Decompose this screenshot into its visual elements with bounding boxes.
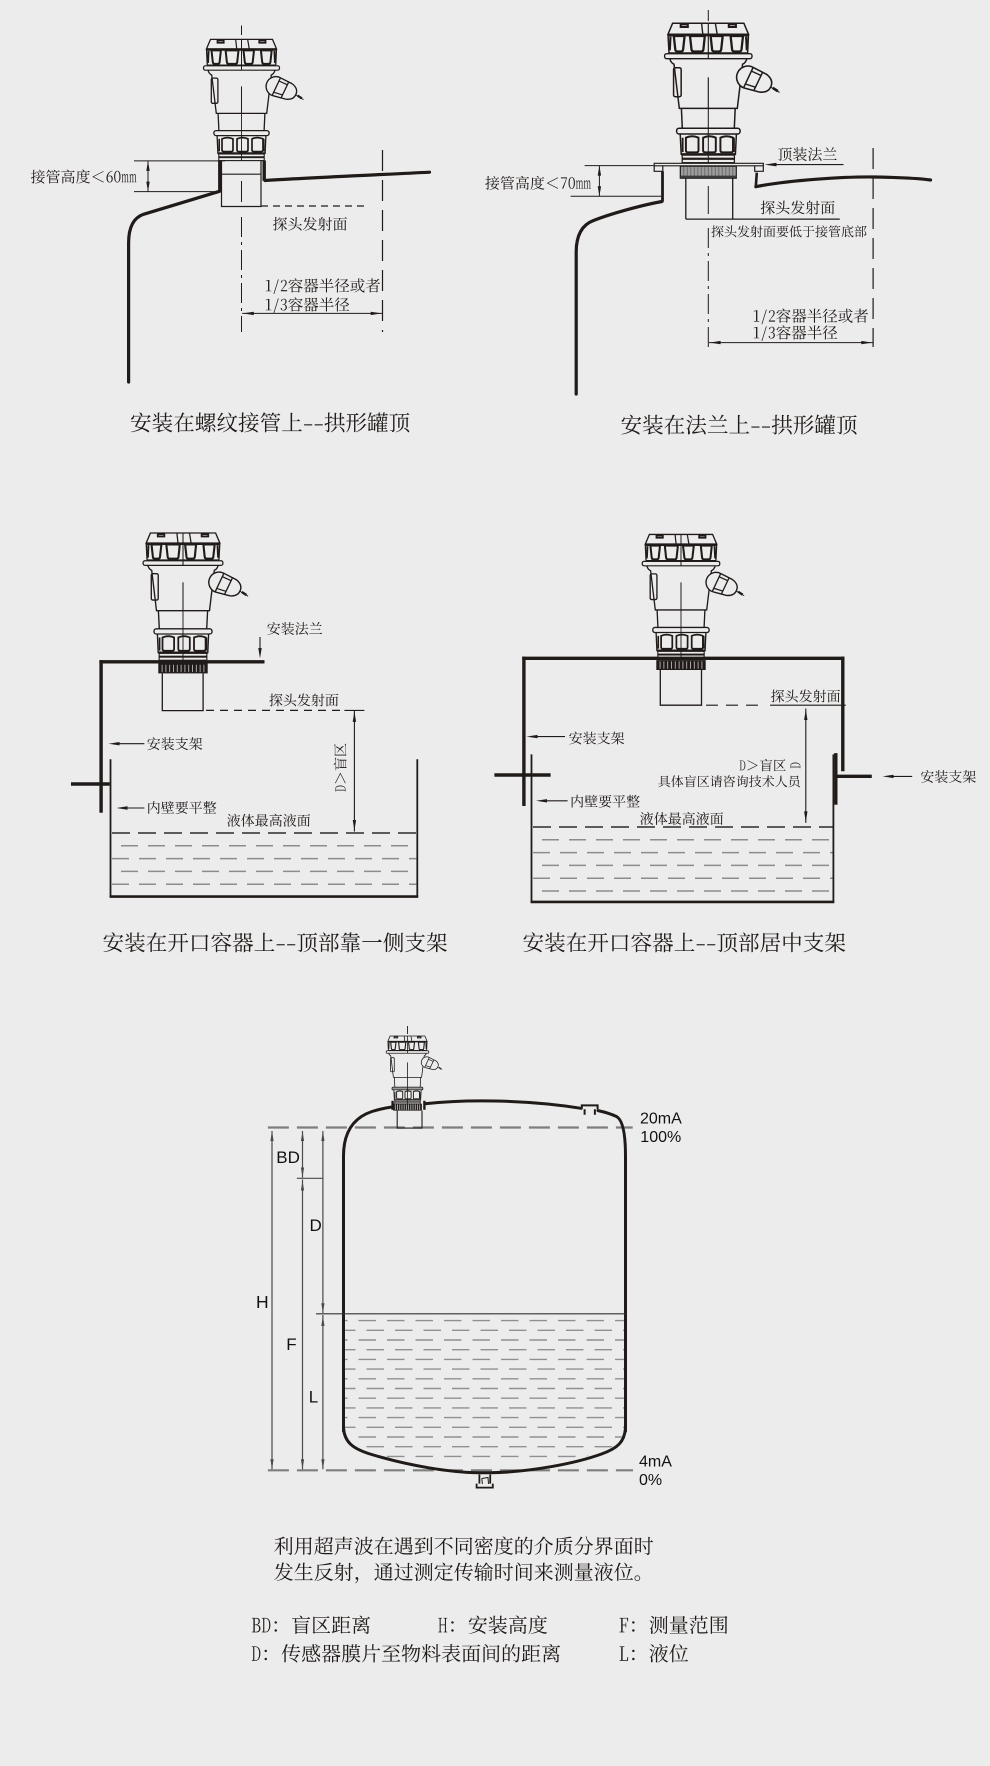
svg-text:D: D [310, 1216, 322, 1235]
svg-text:20mA: 20mA [640, 1111, 682, 1128]
svg-text:4mA: 4mA [639, 1454, 672, 1471]
svg-text:F: F [286, 1335, 296, 1354]
svg-text:H: H [256, 1292, 269, 1312]
svg-text:BD: BD [276, 1148, 300, 1167]
svg-text:L: L [309, 1387, 318, 1406]
svg-text:100%: 100% [640, 1129, 681, 1146]
svg-text:0%: 0% [639, 1472, 662, 1489]
